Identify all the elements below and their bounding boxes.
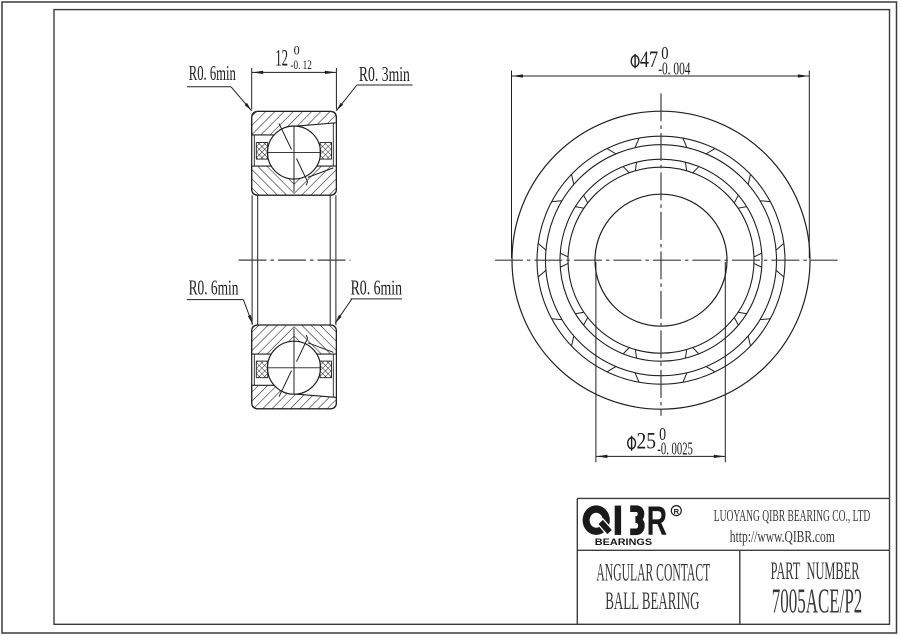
- svg-text:R0. 6min: R0. 6min: [189, 278, 239, 300]
- svg-text:BEARINGS: BEARINGS: [595, 537, 652, 547]
- svg-text:-0. 0025: -0. 0025: [657, 438, 693, 458]
- svg-text:47: 47: [640, 47, 658, 72]
- svg-text:0: 0: [294, 43, 300, 57]
- svg-text:25: 25: [637, 429, 657, 454]
- svg-text:ANGULAR CONTACT: ANGULAR CONTACT: [596, 560, 710, 587]
- svg-text:LUOYANG QIBR BEARING CO., LTD: LUOYANG QIBR BEARING CO., LTD: [714, 506, 871, 525]
- svg-text:-0. 12: -0. 12: [290, 58, 312, 72]
- svg-text:-0. 004: -0. 004: [658, 59, 690, 79]
- svg-text:BALL BEARING: BALL BEARING: [605, 588, 699, 615]
- svg-text:12: 12: [275, 46, 288, 71]
- svg-text:R: R: [674, 507, 680, 516]
- svg-text:R0. 3min: R0. 3min: [359, 64, 410, 86]
- svg-text:http://www.QIBR.com: http://www.QIBR.com: [730, 527, 835, 546]
- svg-text:R0. 6min: R0. 6min: [351, 278, 403, 300]
- svg-text:7005ACE/P2: 7005ACE/P2: [772, 582, 863, 621]
- svg-text:R0. 6min: R0. 6min: [189, 63, 236, 85]
